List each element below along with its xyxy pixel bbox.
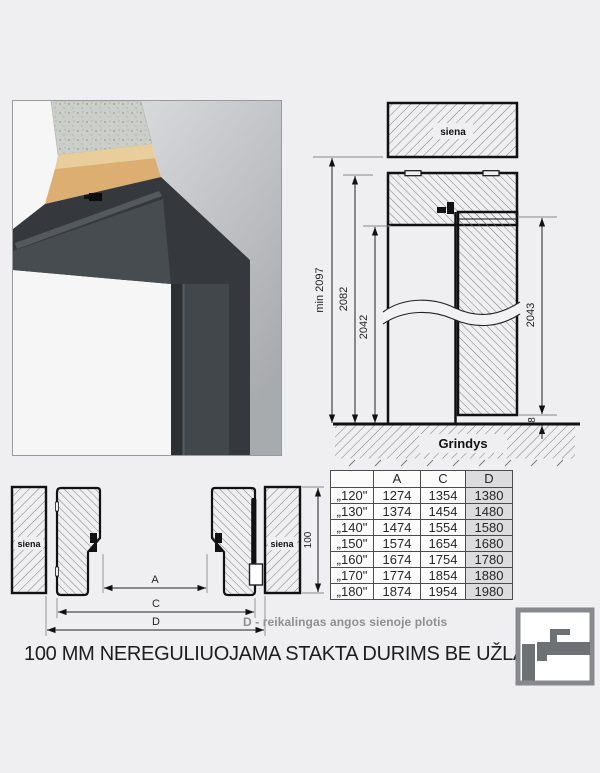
value-cell: 1774 [374, 568, 421, 584]
table-row: „170" 1774 1854 1880 [331, 568, 513, 584]
dim-floor-gap: 8 [527, 417, 538, 423]
value-cell: 1854 [421, 568, 466, 584]
dim-a-label: A [151, 574, 159, 586]
size-cell: „120" [331, 488, 374, 504]
seal-detail [89, 193, 102, 201]
frame-jamb-edge [171, 284, 183, 455]
size-cell: „130" [331, 504, 374, 520]
frame-profile-logo-icon [515, 604, 595, 688]
value-cell: 1354 [421, 488, 466, 504]
table-header-cell: C [421, 471, 466, 488]
frame-corner-photo [12, 100, 282, 456]
table-row: „130" 1374 1454 1480 [331, 504, 513, 520]
groove [56, 502, 59, 511]
value-cell: 1480 [466, 504, 513, 520]
table-header-cell: D [466, 471, 513, 488]
floor: Grindys [333, 424, 580, 466]
seal-left [90, 533, 97, 543]
dim-leaf-height: 2043 [525, 303, 537, 327]
size-cell: „140" [331, 520, 374, 536]
value-cell: 1674 [374, 552, 421, 568]
value-cell: 1780 [466, 552, 513, 568]
value-cell: 1754 [421, 552, 466, 568]
value-cell: 1980 [466, 584, 513, 600]
value-cell: 1554 [421, 520, 466, 536]
plan-frame-left [56, 488, 100, 595]
groove [56, 567, 59, 576]
plan-wall-right-label: siena [270, 539, 294, 549]
seal-clip [84, 195, 90, 199]
value-cell: 1374 [374, 504, 421, 520]
plan-frame-right [212, 488, 263, 595]
value-cell: 1574 [374, 536, 421, 552]
gasket-strip [251, 498, 256, 565]
table-row: „150" 1574 1654 1680 [331, 536, 513, 552]
value-cell: 1454 [421, 504, 466, 520]
plan-wall-left: siena [12, 487, 46, 593]
size-cell: „170" [331, 568, 374, 584]
header-notch [405, 171, 421, 176]
frame-corner-render [13, 101, 281, 455]
size-table: A C D „120" 1274 1354 1380 „130" 1374 14… [330, 470, 513, 600]
plan-wall-left-label: siena [17, 539, 41, 549]
table-row: „120" 1274 1354 1380 [331, 488, 513, 504]
vertical-section-drawing: siena Grindys [305, 90, 600, 470]
dim-frame-height: 2082 [338, 287, 350, 311]
table-row: „160" 1674 1754 1780 [331, 552, 513, 568]
header-notch [483, 171, 499, 176]
value-cell: 1954 [421, 584, 466, 600]
floor-label: Grindys [438, 436, 487, 451]
dim-min-height: min 2097 [314, 267, 326, 312]
table-row: „180" 1874 1954 1980 [331, 584, 513, 600]
seal-right [215, 533, 222, 543]
table-header-cell: A [374, 471, 421, 488]
section-wall-block: siena [388, 103, 517, 157]
page-title: 100 MM NEREGULIUOJAMA STAKTA DURIMS BE U… [24, 643, 524, 666]
value-cell: 1474 [374, 520, 421, 536]
table-header-row: A C D [331, 471, 513, 488]
value-cell: 1880 [466, 568, 513, 584]
dim-d-label: D [152, 616, 160, 628]
value-cell: 1274 [374, 488, 421, 504]
d-dimension-note: D - reikalingas angos sienoje plotis [243, 615, 503, 629]
dim-opening-height: 2042 [358, 315, 370, 339]
frame-jamb-side [229, 284, 250, 455]
table-row: „140" 1474 1554 1580 [331, 520, 513, 536]
value-cell: 1654 [421, 536, 466, 552]
table-header-cell [331, 471, 374, 488]
dim-depth-label: 100 [303, 531, 314, 548]
section-wall-label: siena [440, 127, 466, 138]
size-cell: „150" [331, 536, 374, 552]
value-cell: 1580 [466, 520, 513, 536]
size-cell: „180" [331, 584, 374, 600]
size-cell: „160" [331, 552, 374, 568]
jamb-highlight-line [183, 284, 185, 455]
value-cell: 1680 [466, 536, 513, 552]
frame-jamb-face [183, 284, 229, 455]
brand-logo [515, 604, 595, 693]
dim-c-label: C [152, 598, 160, 610]
value-cell: 1874 [374, 584, 421, 600]
plan-wall-right: siena [265, 487, 300, 593]
value-cell: 1380 [466, 488, 513, 504]
strike-box [250, 564, 263, 585]
